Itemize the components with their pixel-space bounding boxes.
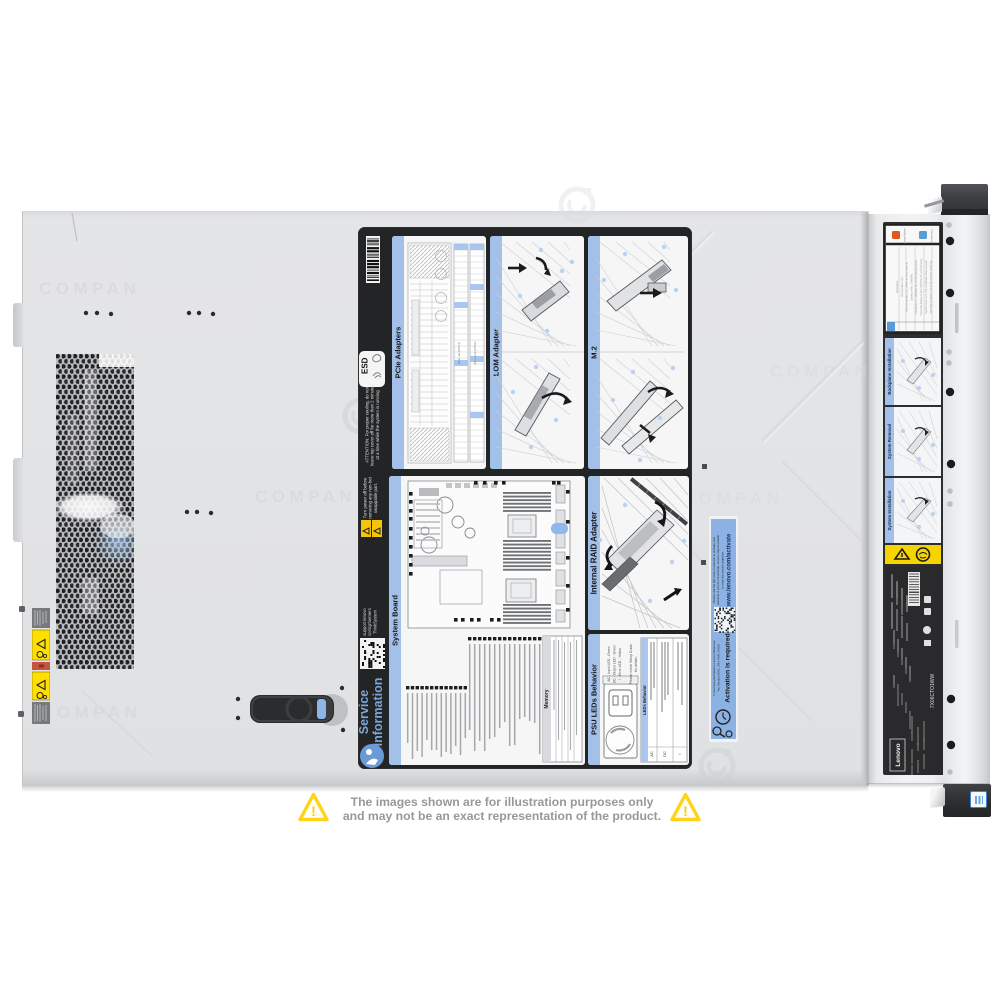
svg-text:Rear 1st (CPU1): Rear 1st (CPU1) [457, 342, 461, 364]
svg-text:AC - Input LED - Green: AC - Input LED - Green [607, 646, 611, 681]
svg-text:System Board: System Board [391, 595, 400, 646]
svg-text:www.lenovo.com/activate: www.lenovo.com/activate [727, 533, 733, 607]
svg-text:System error LED. It lit, it i: System error LED. It lit, it indicates t… [925, 260, 928, 314]
svg-text:ThinkSystem: ThinkSystem [372, 609, 377, 634]
svg-text:Information: Information [371, 678, 385, 747]
svg-text:System Installation: System Installation [887, 490, 892, 530]
svg-text:Activation is required: Activation is required [725, 633, 732, 703]
svg-text:Rear 2nd (CPU2): Rear 2nd (CPU2) [473, 341, 477, 364]
svg-text:for details.: for details. [634, 656, 638, 672]
svg-text:7X06CTO1WW: 7X06CTO1WW [930, 674, 936, 709]
svg-text:Tier Service (SWL, 24H, 8HR, 2: Tier Service (SWL, 24H, 8HR, 24HS) [716, 644, 720, 691]
svg-text:Lenovo: Lenovo [895, 743, 902, 766]
svg-text:Press this button to turn on/o: Press this button to turn on/off the ID … [920, 258, 923, 315]
svg-text:LOM Adapter: LOM Adapter [492, 329, 501, 376]
svg-text:Network activity LED. Blinks t: Network activity LED. Blinks to show net… [906, 261, 909, 312]
svg-text:System Removal: System Removal [887, 424, 892, 459]
svg-text:LEDs Behavior: LEDs Behavior [642, 685, 647, 715]
svg-text:Service: Service [358, 690, 371, 735]
svg-text:Power failure: Power failure [903, 228, 907, 244]
svg-text:Please check Setup Guide: Please check Setup Guide [629, 644, 633, 684]
svg-text:activity of the LAN/WAN.: activity of the LAN/WAN. [910, 273, 913, 301]
svg-text:AC: AC [649, 751, 654, 757]
svg-text:Power button LED: Power button LED [901, 277, 904, 297]
svg-text:PSU LEDs Behavior: PSU LEDs Behavior [590, 664, 599, 735]
svg-text:to meet the service objective.: to meet the service objective. [720, 551, 724, 589]
svg-text:If you have purchased a Lenovo: If you have purchased a Lenovo Response [712, 640, 716, 695]
svg-text:Internal RAID Adapter: Internal RAID Adapter [590, 512, 599, 595]
svg-text:!: ! [677, 753, 682, 754]
svg-text:System boot: System boot [930, 229, 934, 244]
svg-text:! - Error LED - Yellow: ! - Error LED - Yellow [618, 648, 622, 680]
svg-text:Memory: Memory [544, 689, 550, 708]
svg-text:swappable part.: swappable part. [373, 483, 378, 513]
svg-text:!: ! [683, 803, 688, 819]
svg-text:at a time while the system is: at a time while the system is running [375, 390, 380, 460]
svg-text:DC: DC [662, 751, 667, 757]
svg-text:ESD: ESD [361, 357, 370, 374]
svg-text:PCIe Adapters: PCIe Adapters [394, 327, 403, 379]
svg-text:error has occurred. Check the: error has occurred. Check the system eve… [930, 260, 933, 314]
svg-text:Description: Description [896, 280, 899, 293]
svg-text:Backplane Installation: Backplane Installation [887, 348, 892, 395]
svg-text:M.2: M.2 [590, 346, 599, 359]
svg-text:DC - Output LED - Green: DC - Output LED - Green [612, 645, 616, 683]
svg-text:ID button/LED. Identifies the: ID button/LED. Identifies the server amo… [915, 259, 918, 315]
svg-text:!: ! [311, 803, 316, 819]
